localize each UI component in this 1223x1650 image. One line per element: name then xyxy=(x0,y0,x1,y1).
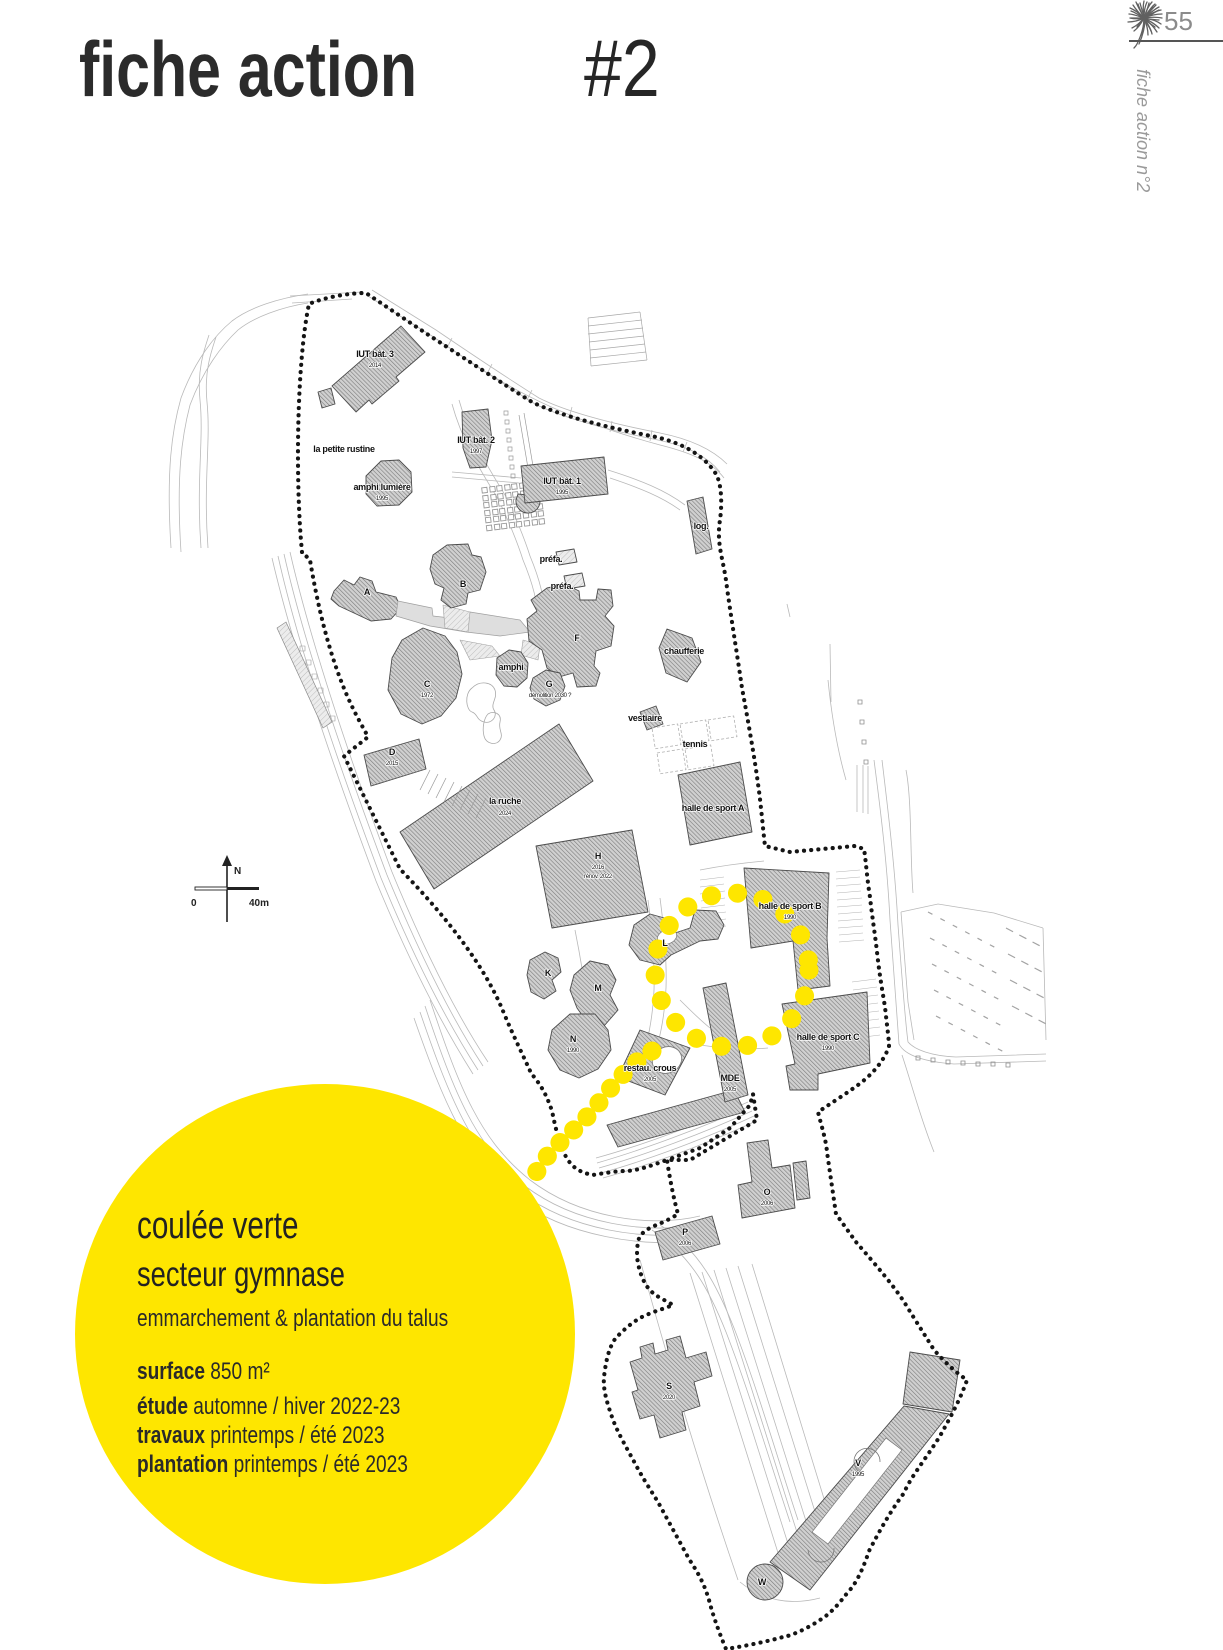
svg-text:préfa.: préfa. xyxy=(540,554,563,564)
svg-text:rénov. 2022: rénov. 2022 xyxy=(584,874,613,880)
svg-text:log.: log. xyxy=(694,521,709,531)
svg-text:C: C xyxy=(424,679,431,689)
svg-text:2016: 2016 xyxy=(592,865,605,871)
svg-text:2014: 2014 xyxy=(369,363,382,369)
svg-text:M: M xyxy=(594,983,601,993)
svg-text:2005: 2005 xyxy=(724,1087,737,1093)
svg-text:amphi lumière: amphi lumière xyxy=(353,482,410,492)
svg-text:B: B xyxy=(460,579,467,589)
svg-text:2020: 2020 xyxy=(663,1395,676,1401)
svg-text:V: V xyxy=(855,1458,861,1468)
svg-text:démolition 2030 ?: démolition 2030 ? xyxy=(529,693,572,699)
svg-text:0: 0 xyxy=(191,898,197,909)
svg-text:2024: 2024 xyxy=(499,811,512,817)
svg-text:chaufferie: chaufferie xyxy=(664,646,704,656)
svg-text:F: F xyxy=(574,633,580,643)
svg-text:la ruche: la ruche xyxy=(489,796,521,806)
svg-text:2015: 2015 xyxy=(386,761,399,767)
svg-text:O: O xyxy=(764,1187,771,1197)
svg-text:tennis: tennis xyxy=(683,739,708,749)
svg-text:H: H xyxy=(595,851,601,861)
svg-text:K: K xyxy=(545,968,552,978)
svg-text:1990: 1990 xyxy=(567,1048,580,1054)
svg-text:G: G xyxy=(546,679,553,689)
svg-text:2005: 2005 xyxy=(644,1077,657,1083)
svg-text:la petite rustine: la petite rustine xyxy=(313,444,375,454)
svg-text:2006: 2006 xyxy=(761,1201,774,1207)
svg-text:P: P xyxy=(682,1227,688,1237)
svg-text:A: A xyxy=(364,587,371,597)
svg-text:1995: 1995 xyxy=(376,496,389,502)
svg-text:IUT bât. 1: IUT bât. 1 xyxy=(543,476,581,486)
svg-text:IUT bât. 2: IUT bât. 2 xyxy=(457,435,495,445)
svg-text:1972: 1972 xyxy=(421,693,434,699)
svg-text:1997: 1997 xyxy=(470,449,483,455)
svg-text:halle de sport B: halle de sport B xyxy=(759,901,823,911)
svg-text:halle de sport C: halle de sport C xyxy=(797,1032,861,1042)
svg-text:MDE: MDE xyxy=(720,1073,739,1083)
svg-text:N: N xyxy=(234,866,241,877)
svg-text:L: L xyxy=(662,938,668,948)
svg-text:N: N xyxy=(570,1034,576,1044)
svg-text:S: S xyxy=(666,1381,672,1391)
svg-text:40m: 40m xyxy=(249,898,269,909)
svg-text:préfa.: préfa. xyxy=(551,581,574,591)
svg-text:vestiaire: vestiaire xyxy=(628,713,662,723)
svg-text:W: W xyxy=(758,1577,767,1587)
svg-text:amphi: amphi xyxy=(498,662,523,672)
svg-text:IUT bât. 3: IUT bât. 3 xyxy=(356,349,394,359)
svg-text:1990: 1990 xyxy=(822,1046,835,1052)
svg-text:halle de sport A: halle de sport A xyxy=(682,803,745,813)
svg-text:D: D xyxy=(389,747,396,757)
svg-text:restau. crous: restau. crous xyxy=(624,1063,677,1073)
svg-text:1995: 1995 xyxy=(852,1472,865,1478)
svg-text:2006: 2006 xyxy=(679,1241,692,1247)
svg-text:1990: 1990 xyxy=(784,915,797,921)
svg-text:1995: 1995 xyxy=(556,490,569,496)
